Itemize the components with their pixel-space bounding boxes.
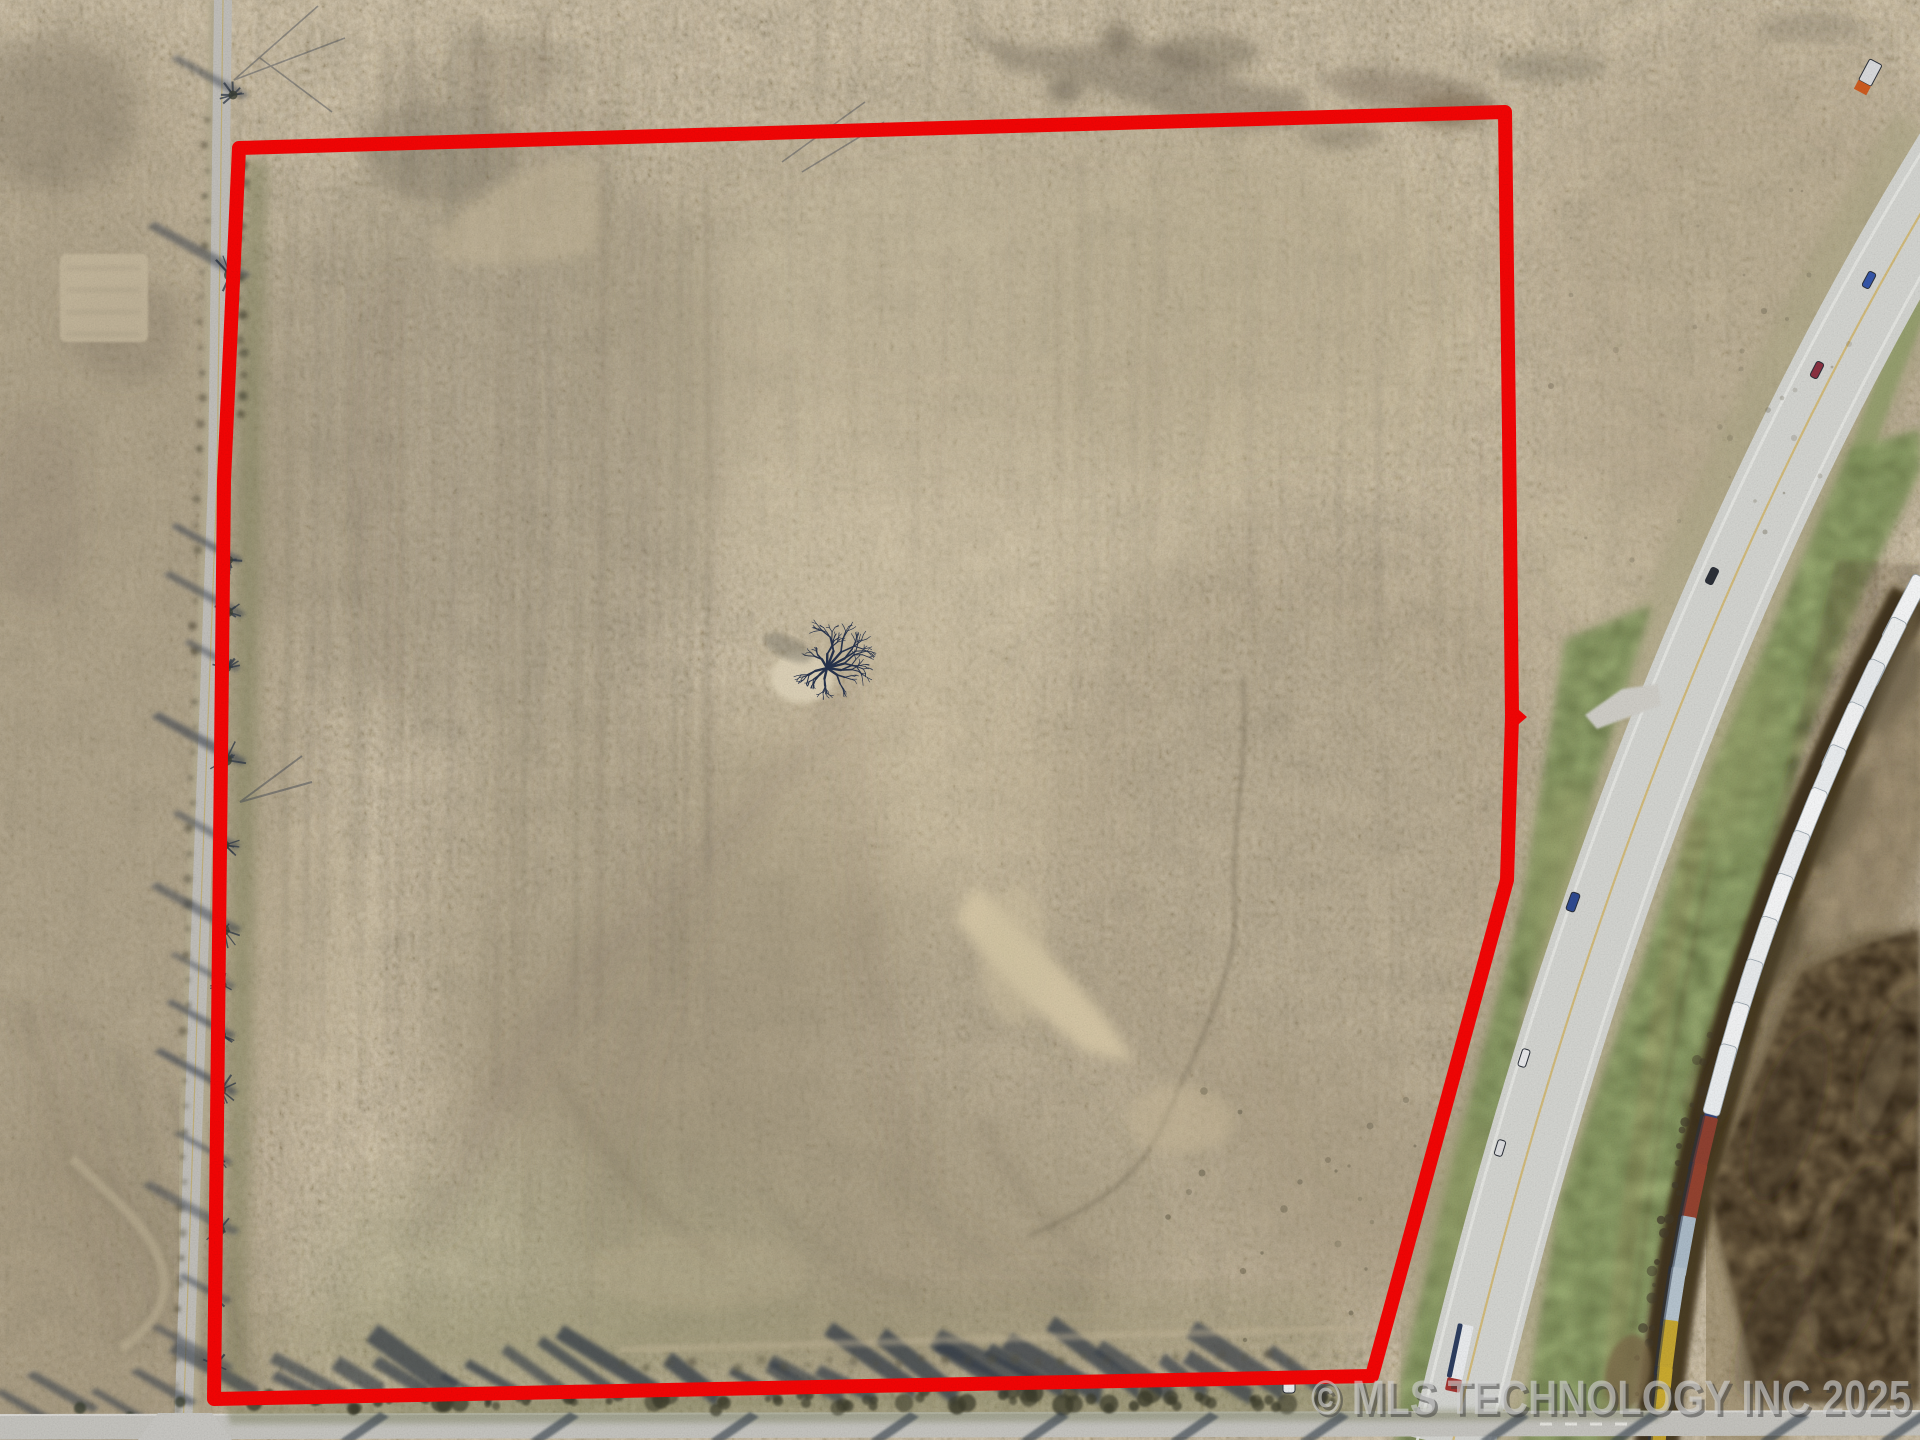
- svg-text:© MLS TECHNOLOGY INC 2025: © MLS TECHNOLOGY INC 2025: [1311, 1372, 1911, 1425]
